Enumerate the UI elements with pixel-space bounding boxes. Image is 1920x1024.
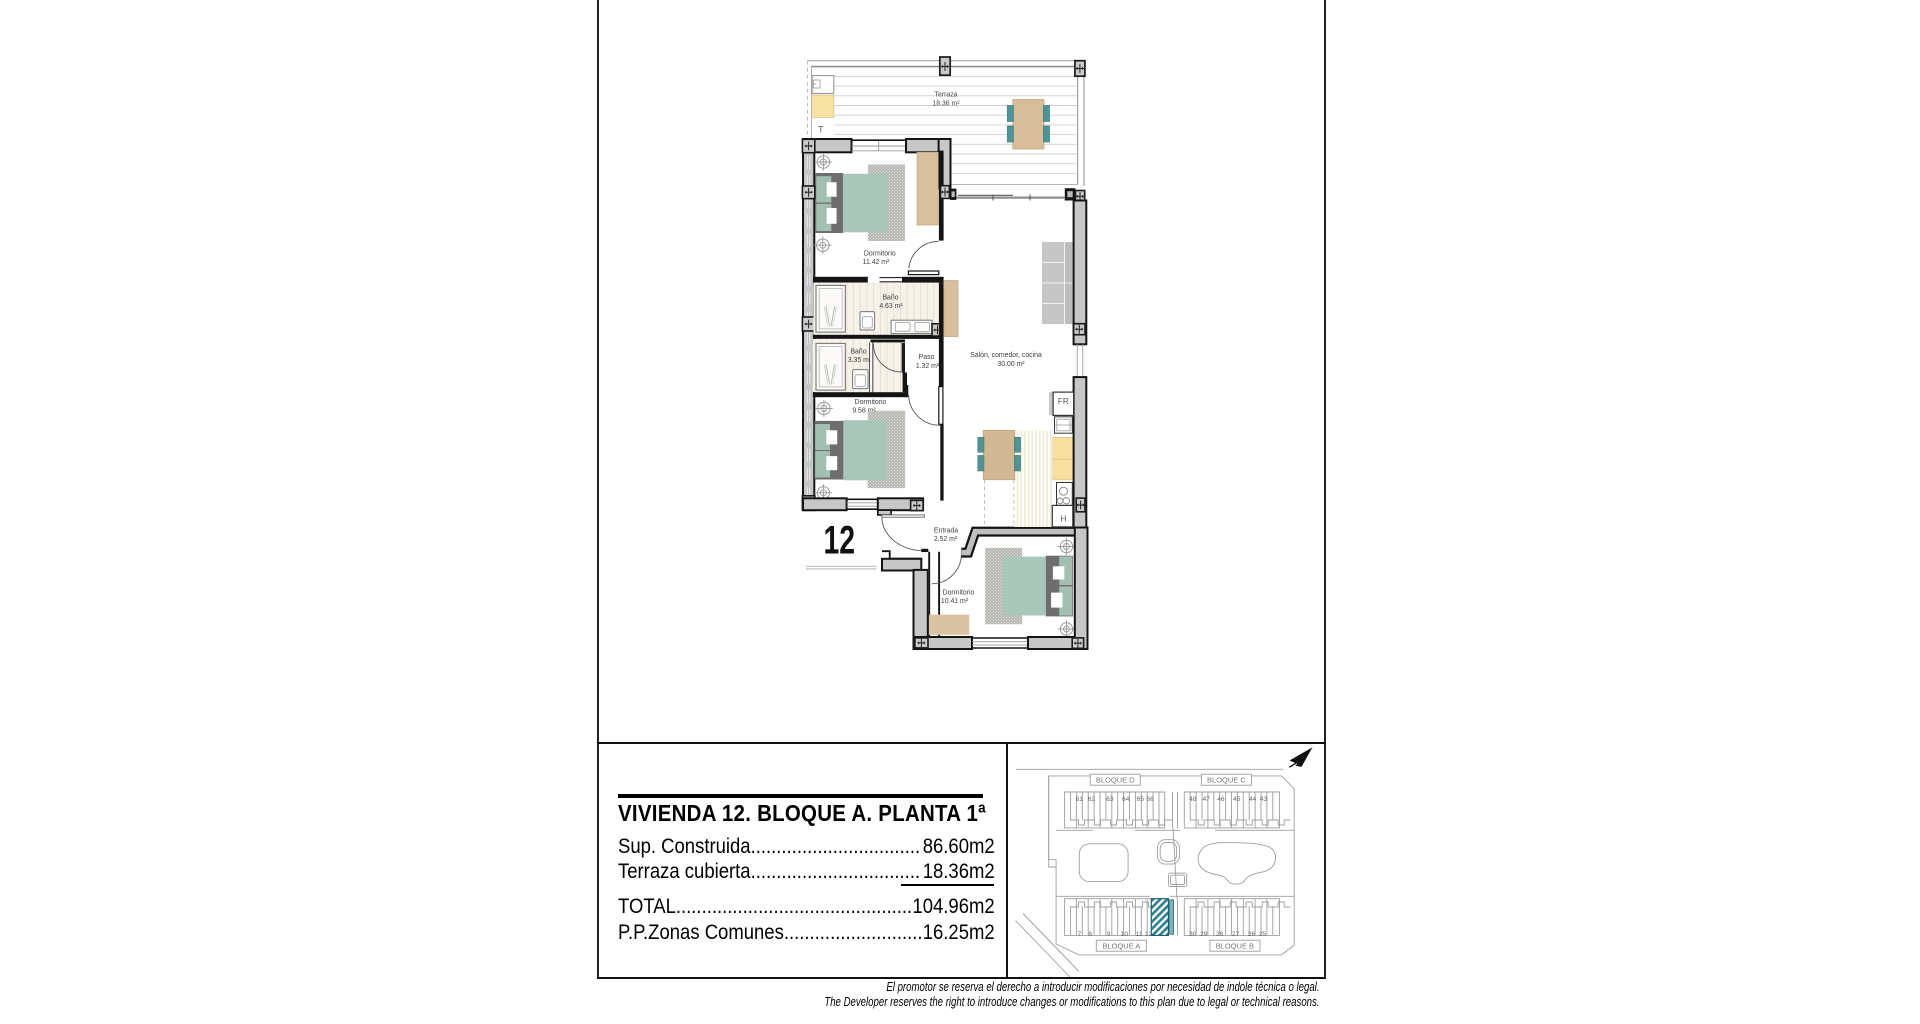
- svg-text:1.32 m²: 1.32 m²: [916, 363, 940, 370]
- svg-text:25: 25: [1259, 931, 1267, 938]
- svg-text:43: 43: [1260, 796, 1268, 803]
- svg-text:10: 10: [1121, 931, 1129, 938]
- svg-text:Entrada: Entrada: [934, 527, 958, 534]
- svg-text:Salón, comedor, cocina: Salón, comedor, cocina: [970, 352, 1042, 359]
- svg-text:Baño: Baño: [882, 294, 898, 301]
- svg-text:10.41 m²: 10.41 m²: [941, 598, 969, 605]
- svg-text:8: 8: [1088, 931, 1092, 938]
- svg-text:Terraza: Terraza: [935, 92, 958, 99]
- svg-text:BLOQUE C: BLOQUE C: [1207, 776, 1246, 785]
- svg-text:Dormitorio: Dormitorio: [943, 590, 975, 597]
- svg-text:Dormitorio: Dormitorio: [864, 251, 896, 258]
- svg-text:11: 11: [1136, 931, 1143, 938]
- svg-text:T: T: [818, 125, 824, 136]
- svg-text:26: 26: [1248, 931, 1256, 938]
- svg-text:44: 44: [1249, 796, 1257, 803]
- svg-text:11.42 m²: 11.42 m²: [863, 259, 890, 266]
- svg-text:FR: FR: [1058, 397, 1069, 406]
- svg-text:H: H: [1061, 514, 1067, 523]
- svg-text:62: 62: [1088, 796, 1096, 803]
- svg-text:61: 61: [1076, 796, 1084, 803]
- svg-text:3.35 m²: 3.35 m²: [848, 357, 872, 364]
- svg-text:9: 9: [1107, 931, 1111, 938]
- svg-text:BLOQUE D: BLOQUE D: [1096, 776, 1135, 785]
- svg-text:63: 63: [1106, 796, 1114, 803]
- svg-text:27: 27: [1232, 931, 1240, 938]
- svg-text:Paso: Paso: [919, 354, 935, 361]
- svg-text:4.63 m²: 4.63 m²: [879, 303, 903, 310]
- svg-text:66: 66: [1146, 796, 1154, 803]
- svg-text:12: 12: [824, 519, 856, 563]
- svg-text:64: 64: [1122, 796, 1130, 803]
- svg-text:30: 30: [1189, 931, 1197, 938]
- svg-text:30.00 m²: 30.00 m²: [997, 361, 1025, 368]
- svg-text:48: 48: [1189, 796, 1197, 803]
- svg-text:29: 29: [1200, 931, 1208, 938]
- svg-text:Baño: Baño: [850, 349, 866, 356]
- svg-text:65: 65: [1137, 796, 1145, 803]
- svg-text:47: 47: [1203, 796, 1211, 803]
- svg-text:2.52 m²: 2.52 m²: [934, 536, 958, 543]
- svg-text:BLOQUE A: BLOQUE A: [1102, 942, 1140, 951]
- svg-text:7: 7: [1077, 931, 1081, 938]
- svg-text:BLOQUE B: BLOQUE B: [1216, 942, 1254, 951]
- svg-text:46: 46: [1217, 796, 1225, 803]
- svg-text:45: 45: [1233, 796, 1241, 803]
- svg-text:18.36 m²: 18.36 m²: [932, 101, 960, 108]
- svg-text:28: 28: [1216, 931, 1224, 938]
- svg-text:Dormitorio: Dormitorio: [855, 399, 887, 406]
